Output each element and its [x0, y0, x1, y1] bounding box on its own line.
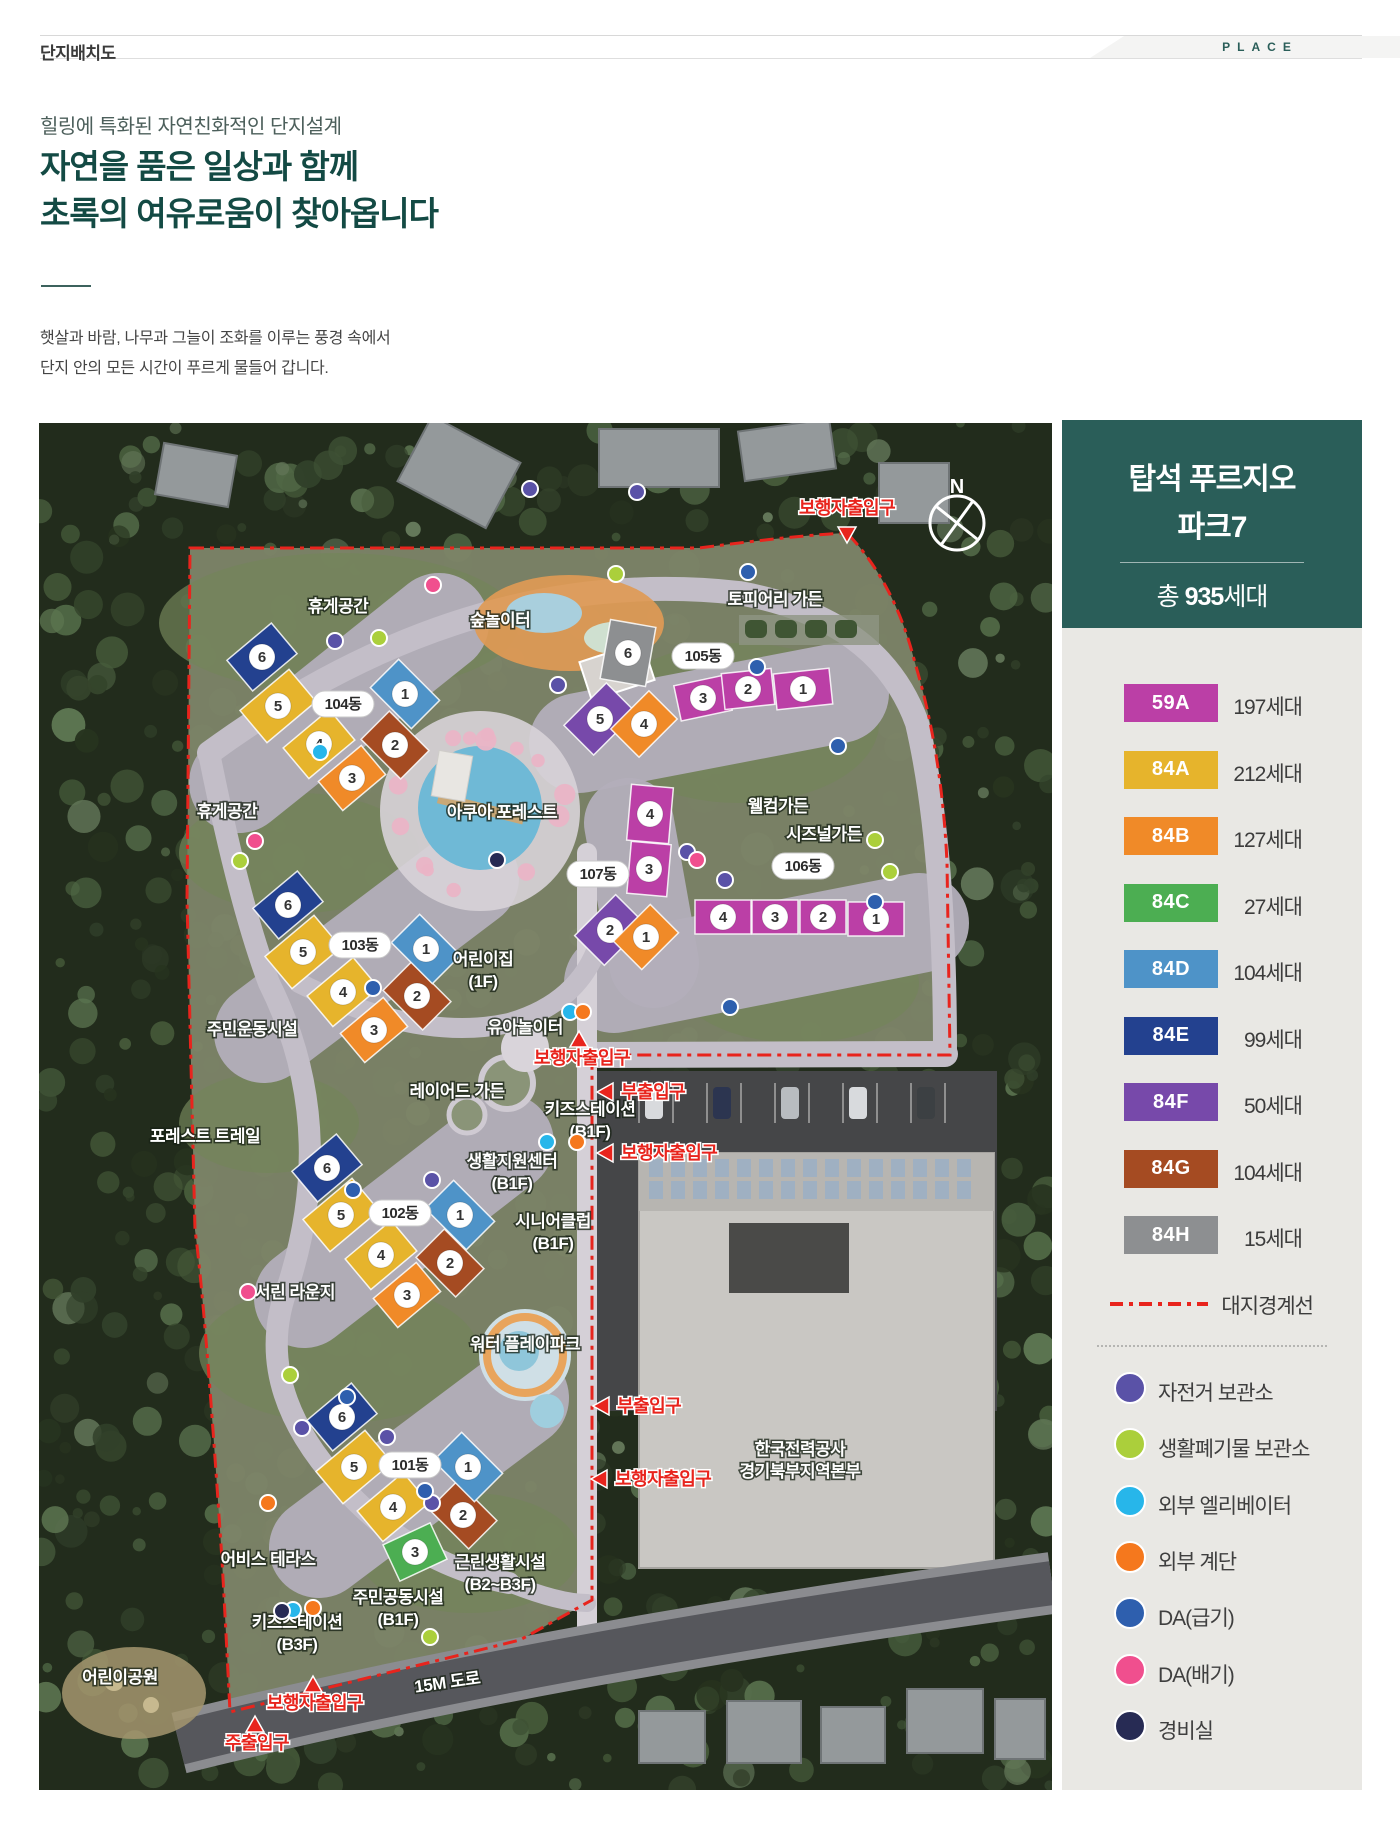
svg-text:2: 2 — [744, 681, 752, 698]
intro-title-line2: 초록의 여유로움이 찾아옵니다 — [40, 190, 438, 237]
page-title: 단지배치도 — [40, 39, 116, 64]
map-dot — [830, 738, 846, 754]
unit-type-swatch: 84D — [1124, 950, 1218, 988]
svg-text:3: 3 — [403, 1287, 411, 1304]
map-dot — [240, 1284, 256, 1300]
map-dot — [550, 677, 566, 693]
svg-text:6: 6 — [624, 645, 632, 662]
svg-text:5: 5 — [274, 698, 282, 715]
map-dot — [629, 484, 645, 500]
map-dot — [371, 630, 387, 646]
svg-text:6: 6 — [323, 1160, 331, 1177]
svg-text:어린이집: 어린이집 — [453, 950, 514, 969]
svg-text:5: 5 — [350, 1459, 358, 1476]
legend-header: 탑석 푸르지오 파크7 총 935세대 — [1062, 420, 1362, 628]
svg-text:휴게공간: 휴게공간 — [308, 596, 369, 616]
unit-type-swatch: 84B — [1124, 817, 1218, 855]
unit-type-row: 84H15세대 — [1062, 1216, 1362, 1254]
svg-text:어린이공원: 어린이공원 — [82, 1668, 158, 1687]
svg-text:아쿠아 포레스트: 아쿠아 포레스트 — [447, 803, 558, 822]
map-dot — [274, 1603, 290, 1619]
svg-text:생활지원센터: 생활지원센터 — [467, 1151, 558, 1171]
svg-text:3: 3 — [645, 861, 653, 878]
map-dot — [232, 853, 248, 869]
svg-text:보행자출입구: 보행자출입구 — [615, 1468, 711, 1489]
svg-text:워터 플레이파크: 워터 플레이파크 — [470, 1335, 581, 1354]
unit-type-count: 104세대 — [1233, 1157, 1302, 1187]
point-legend-dot — [1114, 1654, 1146, 1686]
svg-text:5: 5 — [337, 1207, 345, 1224]
svg-text:포레스트 트레일: 포레스트 트레일 — [150, 1127, 260, 1146]
page-header: 단지배치도 PLACE — [40, 35, 1362, 59]
svg-text:키즈스테이션: 키즈스테이션 — [545, 1100, 636, 1119]
svg-text:4: 4 — [640, 716, 649, 733]
intro-body-line2: 단지 안의 모든 시간이 푸르게 물들어 갑니다. — [40, 354, 390, 384]
unit-type-count: 104세대 — [1233, 957, 1302, 987]
svg-text:1: 1 — [401, 686, 409, 703]
complex-name-line1: 탑석 푸르지오 — [1062, 454, 1362, 498]
svg-text:5: 5 — [596, 711, 604, 728]
map-dot — [722, 999, 738, 1015]
svg-text:(B3F): (B3F) — [277, 1635, 318, 1654]
svg-text:레이어드 가든: 레이어드 가든 — [409, 1082, 505, 1101]
svg-text:3: 3 — [348, 770, 356, 787]
site-plan-svg: 654321104동654321105동654321103동4321107동43… — [39, 423, 1052, 1790]
svg-text:106동: 106동 — [785, 858, 823, 875]
svg-text:1: 1 — [456, 1207, 464, 1224]
svg-text:3: 3 — [411, 1544, 419, 1561]
map-dot — [312, 744, 328, 760]
legend-header-rule — [1120, 562, 1304, 563]
unit-type-swatch: 84A — [1124, 751, 1218, 789]
intro-body: 햇살과 바람, 나무과 그늘이 조화를 이루는 풍경 속에서 단지 안의 모든 … — [40, 324, 390, 384]
svg-text:4: 4 — [377, 1247, 386, 1264]
unit-type-row: 84C27세대 — [1062, 884, 1362, 922]
map-dot — [260, 1495, 276, 1511]
svg-text:2: 2 — [446, 1255, 454, 1272]
point-legend-row: DA(배기) — [1062, 1654, 1362, 1688]
map-dot — [365, 980, 381, 996]
svg-text:시즈널가든: 시즈널가든 — [786, 825, 863, 844]
svg-text:시니어클럽: 시니어클럽 — [515, 1212, 591, 1231]
svg-text:104동: 104동 — [325, 696, 363, 713]
map-dot — [327, 633, 343, 649]
unit-type-swatch: 84E — [1124, 1017, 1218, 1055]
map-dot — [345, 1182, 361, 1198]
svg-text:4: 4 — [719, 909, 728, 926]
section-tag: PLACE — [1090, 36, 1400, 58]
svg-text:한국전력공사: 한국전력공사 — [755, 1440, 847, 1459]
unit-type-row: 84D104세대 — [1062, 950, 1362, 988]
svg-text:토피어리 가든: 토피어리 가든 — [727, 590, 823, 609]
svg-text:경기북부지역본부: 경기북부지역본부 — [739, 1462, 861, 1481]
section-tag-label: PLACE — [1192, 40, 1298, 54]
map-dot — [867, 894, 883, 910]
unit-type-row: 84F50세대 — [1062, 1083, 1362, 1121]
point-legend-row: 외부 계단 — [1062, 1541, 1362, 1575]
svg-text:2: 2 — [606, 922, 614, 939]
svg-text:부출입구: 부출입구 — [621, 1081, 685, 1102]
svg-text:6: 6 — [258, 649, 266, 666]
svg-text:2: 2 — [459, 1507, 467, 1524]
point-legend-label: 생활폐기물 보관소 — [1158, 1433, 1309, 1463]
unit-type-swatch: 84F — [1124, 1083, 1218, 1121]
unit-type-count: 27세대 — [1244, 891, 1302, 921]
svg-text:숲놀이터: 숲놀이터 — [470, 611, 531, 630]
map-dot — [569, 1134, 585, 1150]
point-legend-label: DA(배기) — [1158, 1659, 1234, 1689]
svg-text:유아놀이터: 유아놀이터 — [487, 1018, 563, 1037]
site-plan-map: 654321104동654321105동654321103동4321107동43… — [39, 423, 1052, 1790]
svg-text:4: 4 — [389, 1499, 398, 1516]
unit-type-count: 212세대 — [1233, 758, 1302, 788]
unit-type-swatch: 84G — [1124, 1150, 1218, 1188]
svg-text:1: 1 — [872, 911, 880, 928]
svg-text:107동: 107동 — [580, 866, 618, 883]
point-legend-dot — [1114, 1485, 1146, 1517]
map-dot — [740, 564, 756, 580]
svg-text:주민운동시설: 주민운동시설 — [207, 1020, 298, 1039]
point-legend-row: 생활폐기물 보관소 — [1062, 1428, 1362, 1462]
svg-text:1: 1 — [642, 929, 650, 946]
legend-divider — [1097, 1345, 1327, 1347]
svg-text:4: 4 — [646, 806, 655, 823]
svg-text:어비스 테라스: 어비스 테라스 — [220, 1550, 316, 1569]
svg-text:주민공동시설: 주민공동시설 — [353, 1588, 444, 1607]
unit-type-count: 99세대 — [1244, 1024, 1302, 1054]
svg-text:3: 3 — [370, 1022, 378, 1039]
svg-text:2: 2 — [413, 988, 421, 1005]
map-dot — [882, 864, 898, 880]
unit-type-count: 15세대 — [1244, 1223, 1302, 1253]
boundary-legend-row: 대지경계선 — [1062, 1288, 1362, 1318]
map-dot — [425, 577, 441, 593]
point-legend-label: 외부 계단 — [1158, 1546, 1236, 1576]
unit-type-row: 84E99세대 — [1062, 1017, 1362, 1055]
point-legend-row: 자전거 보관소 — [1062, 1372, 1362, 1406]
map-dot — [689, 852, 705, 868]
unit-type-count: 50세대 — [1244, 1090, 1302, 1120]
svg-text:1: 1 — [464, 1459, 472, 1476]
legend-panel: 59A197세대84A212세대84B127세대84C27세대84D104세대8… — [1062, 628, 1362, 1790]
topiary-garden — [739, 615, 879, 645]
complex-name-line2: 파크7 — [1062, 502, 1362, 546]
intro-body-line1: 햇살과 바람, 나무과 그늘이 조화를 이루는 풍경 속에서 — [40, 324, 390, 354]
map-dot — [489, 852, 505, 868]
total-households: 총 935세대 — [1062, 577, 1362, 613]
unit-type-swatch: 84H — [1124, 1216, 1218, 1254]
svg-text:(1F): (1F) — [468, 972, 497, 991]
map-dot — [749, 659, 765, 675]
point-legend-dot — [1114, 1428, 1146, 1460]
svg-text:6: 6 — [284, 897, 292, 914]
boundary-line-sample — [1110, 1301, 1208, 1307]
svg-text:2: 2 — [819, 909, 827, 926]
unit-type-swatch: 59A — [1124, 684, 1218, 722]
title-divider — [41, 285, 91, 287]
map-dot — [247, 833, 263, 849]
map-dot — [417, 1483, 433, 1499]
point-legend-label: 경비실 — [1158, 1715, 1213, 1745]
svg-text:(B1F): (B1F) — [492, 1174, 533, 1193]
svg-text:2: 2 — [391, 737, 399, 754]
map-dot — [422, 1629, 438, 1645]
map-dot — [379, 1429, 395, 1445]
point-legend-label: 외부 엘리베이터 — [1158, 1490, 1291, 1520]
svg-text:(B1F): (B1F) — [533, 1234, 574, 1253]
point-legend-row: 외부 엘리베이터 — [1062, 1485, 1362, 1519]
intro-title-line1: 자연을 품은 일상과 함께 — [40, 143, 438, 190]
svg-text:3: 3 — [771, 909, 779, 926]
svg-text:101동: 101동 — [392, 1457, 430, 1474]
map-dot — [522, 481, 538, 497]
svg-text:보행자출입구: 보행자출입구 — [267, 1692, 363, 1713]
svg-text:주출입구: 주출입구 — [225, 1732, 289, 1753]
map-dot — [717, 872, 733, 888]
point-legend-row: DA(급기) — [1062, 1597, 1362, 1631]
map-dot — [539, 1134, 555, 1150]
svg-text:웰컴가든: 웰컴가든 — [748, 796, 809, 816]
unit-type-swatch: 84C — [1124, 884, 1218, 922]
svg-text:102동: 102동 — [382, 1205, 420, 1222]
svg-text:부출입구: 부출입구 — [617, 1395, 681, 1416]
svg-text:5: 5 — [299, 944, 307, 961]
svg-text:6: 6 — [338, 1409, 346, 1426]
svg-text:(B1F): (B1F) — [378, 1610, 419, 1629]
boundary-legend-label: 대지경계선 — [1221, 1290, 1313, 1320]
svg-text:휴게공간: 휴게공간 — [197, 801, 258, 821]
point-legend-label: 자전거 보관소 — [1158, 1377, 1273, 1407]
svg-text:근린생활시설: 근린생활시설 — [455, 1552, 546, 1572]
svg-text:1: 1 — [422, 941, 430, 958]
map-dot — [294, 1420, 310, 1436]
point-legend-dot — [1114, 1710, 1146, 1742]
svg-text:3: 3 — [699, 690, 707, 707]
unit-type-row: 84B127세대 — [1062, 817, 1362, 855]
map-dot — [282, 1367, 298, 1383]
point-legend-row: 경비실 — [1062, 1710, 1362, 1744]
unit-type-row: 84G104세대 — [1062, 1150, 1362, 1188]
point-legend-dot — [1114, 1372, 1146, 1404]
point-legend-dot — [1114, 1541, 1146, 1573]
svg-text:1: 1 — [799, 681, 807, 698]
unit-type-count: 127세대 — [1233, 824, 1302, 854]
map-dot — [339, 1389, 355, 1405]
svg-text:105동: 105동 — [685, 648, 723, 665]
svg-text:(B2~B3F): (B2~B3F) — [464, 1575, 535, 1594]
unit-type-row: 84A212세대 — [1062, 751, 1362, 789]
map-dot — [867, 832, 883, 848]
map-dot — [575, 1004, 591, 1020]
svg-text:N: N — [950, 476, 964, 498]
svg-text:보행자출입구: 보행자출입구 — [799, 497, 895, 518]
point-legend-dot — [1114, 1597, 1146, 1629]
intro-title: 자연을 품은 일상과 함께 초록의 여유로움이 찾아옵니다 — [40, 143, 438, 237]
unit-type-row: 59A197세대 — [1062, 684, 1362, 722]
map-dot — [608, 566, 624, 582]
intro-eyebrow: 힐링에 특화된 자연친화적인 단지설계 — [40, 110, 342, 139]
unit-type-count: 197세대 — [1233, 691, 1302, 721]
point-legend-label: DA(급기) — [1158, 1602, 1234, 1632]
svg-text:103동: 103동 — [342, 937, 380, 954]
svg-text:4: 4 — [339, 984, 348, 1001]
svg-text:서린 라운지: 서린 라운지 — [255, 1283, 335, 1302]
map-dot — [424, 1172, 440, 1188]
svg-text:보행자출입구: 보행자출입구 — [534, 1047, 630, 1068]
svg-text:보행자출입구: 보행자출입구 — [621, 1142, 717, 1163]
map-dot — [305, 1600, 321, 1616]
